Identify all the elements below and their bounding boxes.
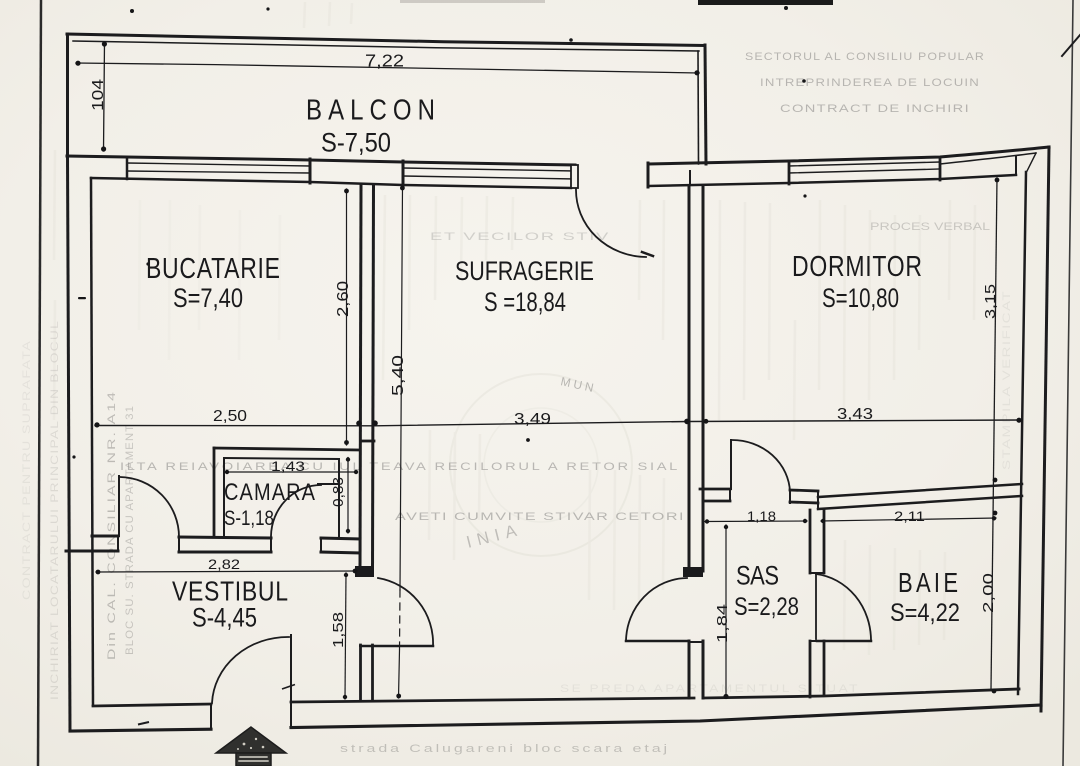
svg-text:3,43: 3,43 bbox=[837, 406, 873, 423]
svg-text:1,84: 1,84 bbox=[714, 604, 731, 643]
svg-text:INCHIRIAT LOCATARULUI PRINCIPA: INCHIRIAT LOCATARULUI PRINCIPAL DIN BLOC… bbox=[49, 320, 61, 700]
svg-text:S-7,50: S-7,50 bbox=[321, 128, 391, 157]
svg-text:strada Calugareni bloc scara e: strada Calugareni bloc scara etaj bbox=[340, 743, 670, 755]
svg-text:2,00: 2,00 bbox=[980, 573, 997, 613]
svg-text:BUCATARIE: BUCATARIE bbox=[146, 251, 280, 284]
svg-text:1,58: 1,58 bbox=[330, 612, 347, 648]
svg-text:BLOC SU. STRADA CU APARTAMENT: BLOC SU. STRADA CU APARTAMENT 31 bbox=[124, 405, 136, 655]
svg-text:S=10,80: S=10,80 bbox=[822, 284, 899, 313]
svg-text:VESTIBUL: VESTIBUL bbox=[172, 577, 288, 607]
svg-text:ILTA REIAVOIAREA CU IUL TEAVA: ILTA REIAVOIAREA CU IUL TEAVA RECILORUL … bbox=[120, 461, 680, 473]
svg-text:5,40: 5,40 bbox=[390, 355, 407, 396]
svg-text:2,50: 2,50 bbox=[213, 408, 247, 425]
svg-text:0,83: 0,83 bbox=[330, 477, 347, 507]
svg-text:104: 104 bbox=[90, 79, 107, 111]
svg-text:PROCES VERBAL: PROCES VERBAL bbox=[870, 221, 990, 233]
svg-text:S=2,28: S=2,28 bbox=[734, 594, 799, 622]
svg-text:S-1,18: S-1,18 bbox=[224, 507, 274, 531]
svg-text:SAS: SAS bbox=[736, 562, 779, 591]
svg-text:AVETI CUMVITE STIVAR CETORI: AVETI CUMVITE STIVAR CETORI bbox=[395, 511, 685, 523]
svg-text:7,22: 7,22 bbox=[365, 51, 404, 71]
svg-text:S =18,84: S =18,84 bbox=[484, 288, 566, 317]
svg-text:2,60: 2,60 bbox=[335, 281, 352, 317]
svg-text:ET VECILOR STIV: ET VECILOR STIV bbox=[430, 231, 610, 243]
svg-text:DORMITOR: DORMITOR bbox=[792, 249, 922, 282]
svg-text:3,15: 3,15 bbox=[982, 284, 999, 319]
svg-text:SE PREDA APARTAMENTUL SITUAT: SE PREDA APARTAMENTUL SITUAT bbox=[560, 683, 860, 695]
svg-text:CONTRACT DE INCHIRI: CONTRACT DE INCHIRI bbox=[780, 103, 970, 115]
svg-text:STAMPILA VERIFICAT: STAMPILA VERIFICAT bbox=[1001, 290, 1013, 470]
svg-text:SECTORUL AL CONSILIU POPULAR: SECTORUL AL CONSILIU POPULAR bbox=[745, 51, 985, 63]
svg-text:S-4,45: S-4,45 bbox=[192, 604, 257, 633]
svg-text:Din CAL. CONSILIAR NR. A14: Din CAL. CONSILIAR NR. A14 bbox=[106, 390, 118, 660]
svg-text:INTREPRINDEREA DE LOCUIN: INTREPRINDEREA DE LOCUIN bbox=[760, 77, 980, 89]
svg-text:S=4,22: S=4,22 bbox=[890, 600, 960, 628]
svg-text:3,49: 3,49 bbox=[514, 411, 551, 428]
svg-text:SUFRAGERIE: SUFRAGERIE bbox=[455, 257, 594, 287]
svg-text:S=7,40: S=7,40 bbox=[173, 284, 243, 313]
svg-text:1,43: 1,43 bbox=[271, 458, 305, 474]
svg-text:CAMARA: CAMARA bbox=[224, 478, 315, 505]
svg-text:2,82: 2,82 bbox=[208, 556, 240, 572]
svg-text:2,11: 2,11 bbox=[894, 508, 925, 524]
svg-text:BAIE: BAIE bbox=[898, 568, 958, 599]
svg-text:CONTRACT PENTRU SUPRAFATA: CONTRACT PENTRU SUPRAFATA bbox=[21, 340, 33, 600]
svg-text:1,18: 1,18 bbox=[747, 508, 776, 524]
